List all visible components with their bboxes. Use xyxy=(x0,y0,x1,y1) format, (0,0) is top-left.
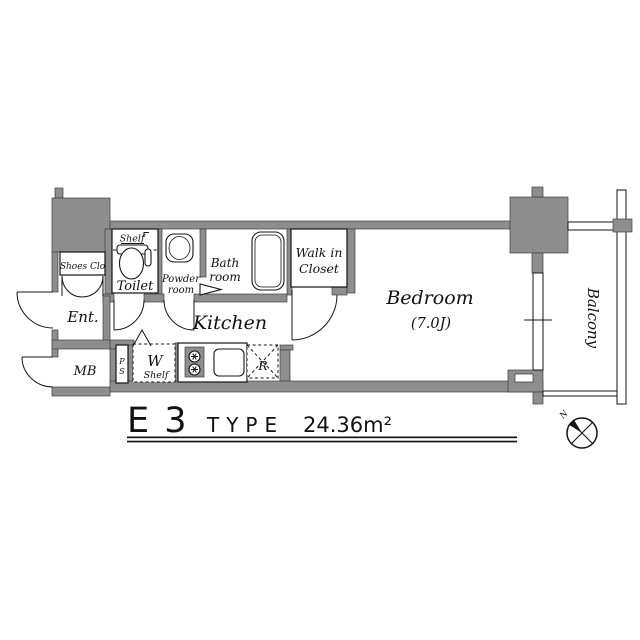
wall-bottom xyxy=(110,381,543,392)
wall-ps-washer-sliver xyxy=(128,345,133,383)
wall-block-top-left xyxy=(52,198,110,252)
label-powder-line1: Powder xyxy=(161,274,201,285)
meter-box-door-swing xyxy=(22,357,53,387)
label-bedroom: Bedroom xyxy=(385,287,473,309)
walls xyxy=(52,187,568,404)
bathtub-outer xyxy=(252,232,284,290)
toilet-bowl xyxy=(120,248,144,279)
label-refrigerator: R xyxy=(257,358,267,373)
label-washer: W xyxy=(147,352,164,370)
balcony-partition xyxy=(568,222,617,230)
floor-plan-canvas: Shoes Clo Ent. MB Shelf Toilet Powder ro… xyxy=(0,0,640,640)
shoes-closet-door-swing-left xyxy=(62,276,82,297)
closet-door-swing xyxy=(292,295,337,340)
label-wic-line1: Walk in xyxy=(296,245,343,260)
wall-ent-hall xyxy=(103,296,110,342)
plan-code: E 3 xyxy=(127,401,189,441)
stove xyxy=(185,347,204,377)
wall-kitchen-bedroom-divider xyxy=(280,350,290,383)
label-pipe-space-s: S xyxy=(119,367,125,376)
wall-left-upper xyxy=(52,252,58,292)
wall-bottom-left xyxy=(52,387,110,396)
balcony-bottom-edge xyxy=(543,391,617,396)
compass-north-label: N xyxy=(557,408,570,421)
wall-powder-bath xyxy=(200,229,206,277)
wall-balcony-stub xyxy=(533,392,543,404)
powder-sink-fixture xyxy=(166,234,193,262)
label-bath-line1: Bath xyxy=(210,256,240,270)
sink-basin-outline xyxy=(166,234,193,262)
entrance-door-swing xyxy=(17,292,53,328)
label-powder-line2: room xyxy=(168,285,194,296)
floor-plan-page: Shoes Clo Ent. MB Shelf Toilet Powder ro… xyxy=(0,0,640,640)
wall-ps-left xyxy=(110,349,116,383)
title-underline-1 xyxy=(127,437,517,439)
plan-area: 24.36m² xyxy=(303,413,392,437)
wall-hall-band-2 xyxy=(144,294,164,302)
powder-door-swing xyxy=(164,300,194,330)
label-shoes-closet: Shoes Clo xyxy=(60,262,106,272)
wall-top xyxy=(110,221,510,229)
label-wic-line2: Closet xyxy=(299,261,340,276)
wall-slot xyxy=(515,374,533,382)
label-bath-line2: room xyxy=(209,270,241,284)
railing-block xyxy=(613,219,632,232)
toilet-door-swing xyxy=(114,300,144,330)
plan-type-label: TYPE xyxy=(206,413,284,437)
wall-divider-step xyxy=(280,345,293,350)
label-toilet-shelf: Shelf xyxy=(120,234,146,245)
label-entrance: Ent. xyxy=(66,308,98,326)
title-underline-2 xyxy=(127,441,517,443)
bath-folding-door xyxy=(200,284,221,295)
wall-ent-mb-divider xyxy=(52,340,110,349)
label-toilet: Toilet xyxy=(117,279,154,294)
wall-pillar-notch xyxy=(532,187,543,197)
wall-notch-top-left xyxy=(55,188,63,198)
bathtub xyxy=(252,232,284,290)
wall-hall-band-3 xyxy=(194,294,287,302)
label-bedroom-size: (7.0J) xyxy=(411,316,451,332)
kitchen-sink xyxy=(214,349,244,376)
label-pipe-space-p: P xyxy=(118,357,125,366)
label-balcony: Balcony xyxy=(584,287,602,349)
toilet-flush-handle xyxy=(145,249,151,266)
wall-pillar xyxy=(510,197,568,253)
label-meter-box: MB xyxy=(73,364,97,379)
compass: N xyxy=(557,408,597,448)
shoes-closet-door-swing-right xyxy=(82,276,103,297)
label-washer-shelf: Shelf xyxy=(144,370,170,381)
wall-wic-bedroom xyxy=(347,229,355,293)
wall-wic-band xyxy=(332,287,347,295)
wall-window-stub-top xyxy=(532,253,543,273)
balcony-window xyxy=(533,273,543,370)
label-kitchen: Kitchen xyxy=(192,312,267,334)
title-block: E 3 TYPE 24.36m² xyxy=(127,401,517,442)
